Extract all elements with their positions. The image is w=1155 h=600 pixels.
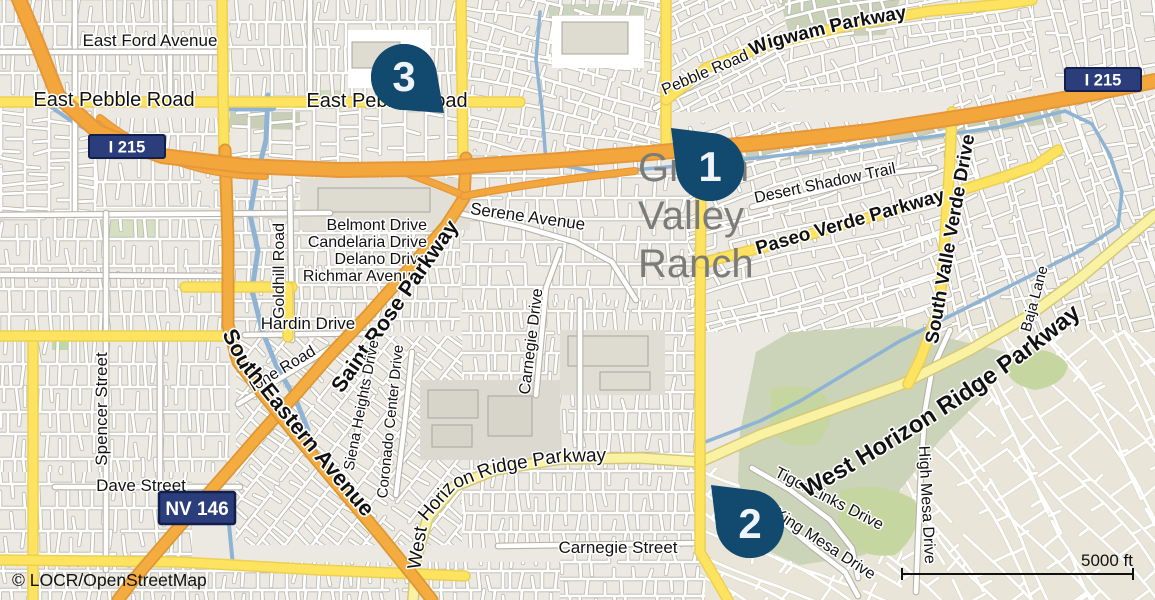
svg-text:Belmont Drive: Belmont Drive [327,217,428,234]
svg-text:Ranch: Ranch [638,242,754,286]
svg-text:3: 3 [392,53,415,100]
svg-text:Goldhill Road: Goldhill Road [271,223,288,319]
svg-text:NV 146: NV 146 [165,499,228,520]
svg-text:1: 1 [698,143,721,190]
svg-text:5000 ft: 5000 ft [1081,551,1133,570]
svg-text:East Ford Avenue: East Ford Avenue [83,31,218,50]
svg-text:I 215: I 215 [109,139,146,157]
svg-text:© LOCR/OpenStreetMap: © LOCR/OpenStreetMap [12,570,207,590]
svg-text:Candelaria Drive: Candelaria Drive [308,234,427,251]
svg-text:Spencer Street: Spencer Street [92,352,111,466]
svg-text:East Pebble Road: East Pebble Road [33,89,194,111]
svg-text:Hardin Drive: Hardin Drive [261,314,355,333]
svg-text:Valley: Valley [638,194,744,238]
svg-text:2: 2 [738,500,761,547]
svg-text:Carnegie Street: Carnegie Street [558,538,677,557]
svg-text:I 215: I 215 [1085,72,1122,90]
